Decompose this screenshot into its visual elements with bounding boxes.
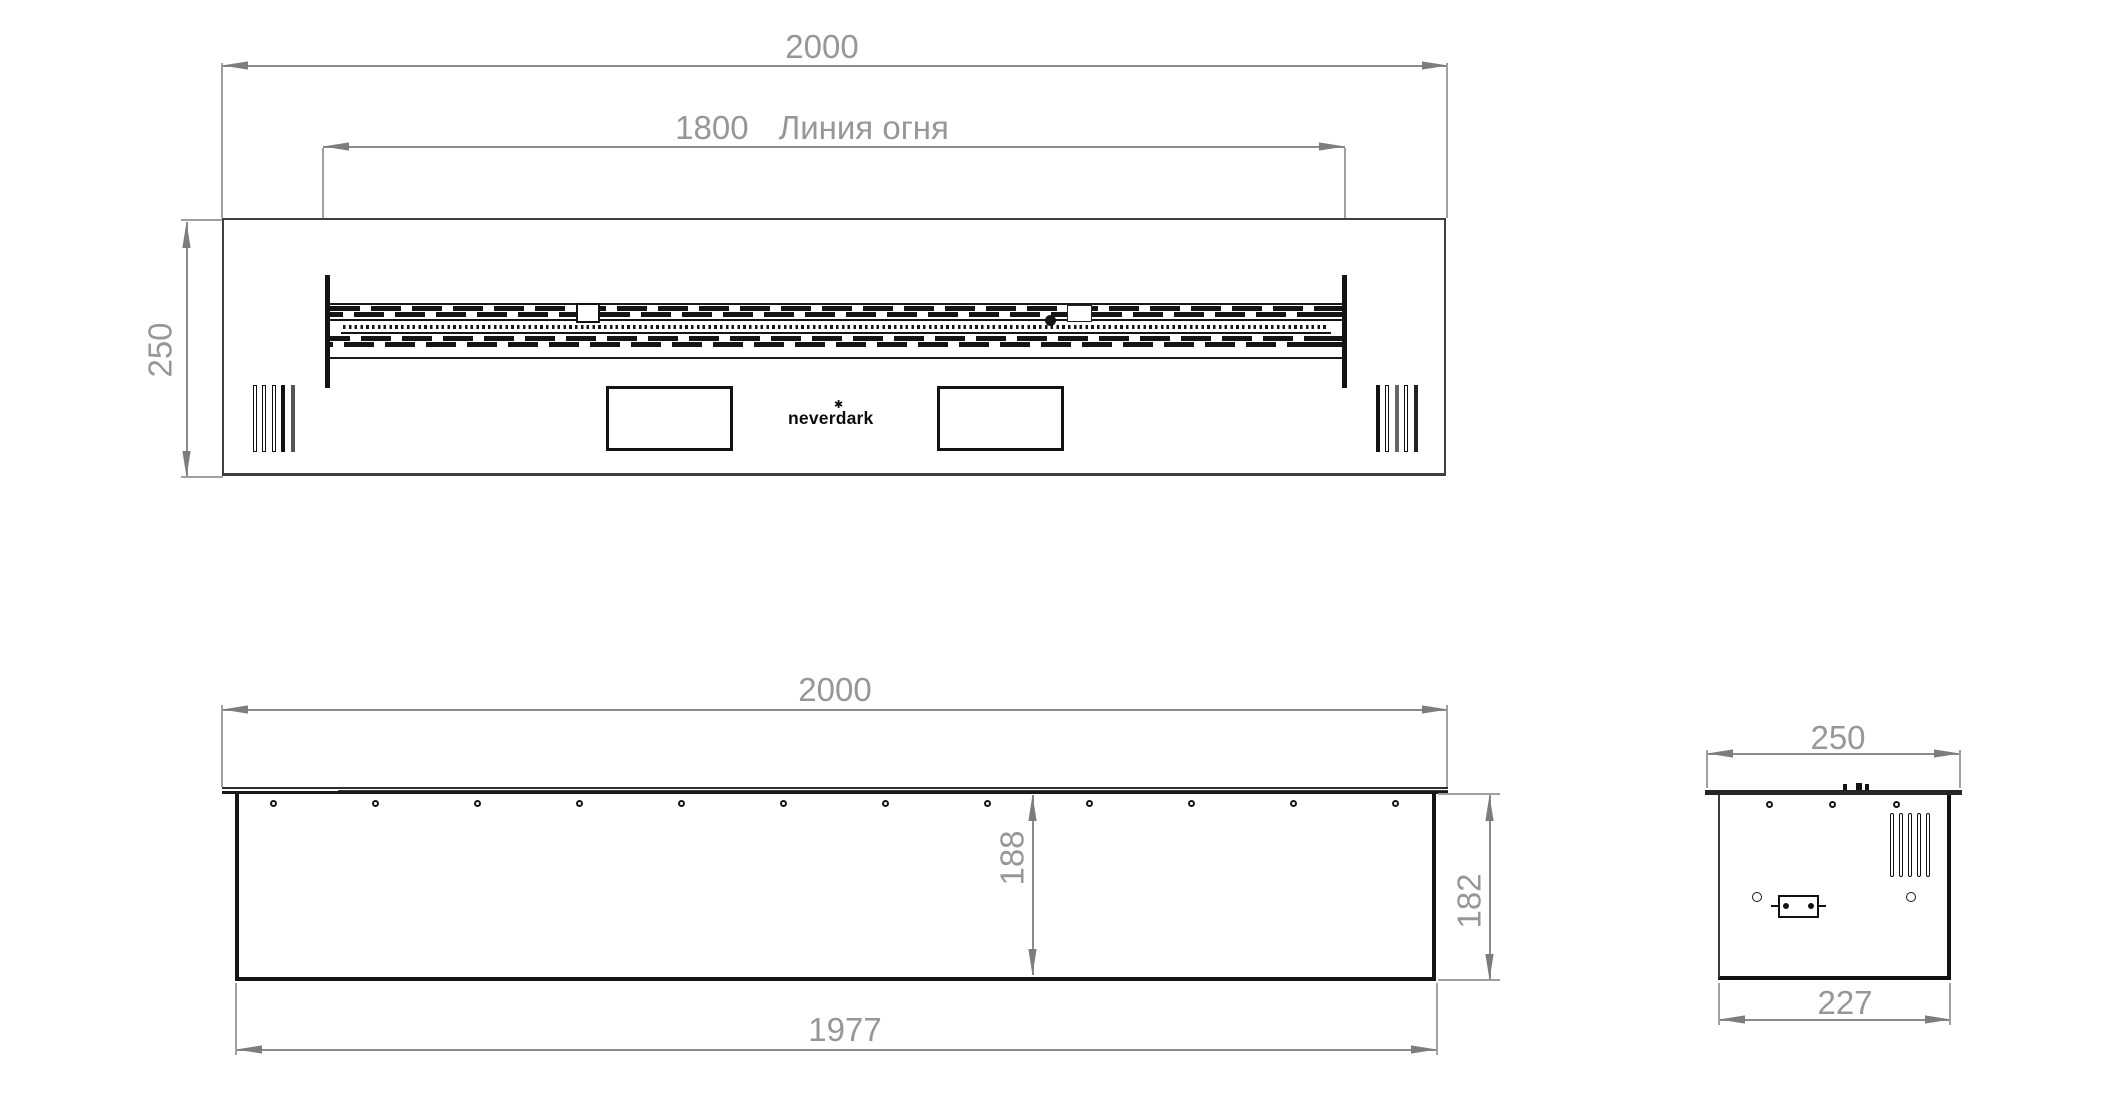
vent-grille-right [1376, 385, 1419, 452]
extension-line [221, 63, 223, 218]
vent-slot [1926, 813, 1930, 877]
vent-grille-left [253, 385, 296, 452]
arrow-up-icon [182, 222, 191, 248]
mounting-hole [1829, 801, 1836, 808]
dim-label: 2000 [775, 671, 895, 709]
hatch-row [330, 312, 1342, 317]
extension-line [221, 705, 223, 787]
mounting-hole [1188, 800, 1195, 807]
mounting-hole [576, 800, 583, 807]
arrow-right-icon [1422, 61, 1448, 70]
arrow-left-icon [236, 1045, 262, 1054]
fixing-hole [1906, 892, 1916, 902]
dim-label: 1977 [785, 1011, 905, 1049]
mounting-hole [1086, 800, 1093, 807]
mounting-hole [270, 800, 277, 807]
tray-end-notch [1331, 321, 1342, 334]
mounting-hole [984, 800, 991, 807]
arrow-left-icon [1707, 749, 1733, 758]
tray-rail [330, 332, 1342, 334]
arrow-down-icon [1028, 949, 1037, 975]
dim-label: 250 [1778, 719, 1898, 757]
fire-line-dots [343, 325, 1329, 329]
mounting-hole [780, 800, 787, 807]
mounting-hole [474, 800, 481, 807]
technical-drawing-sheet: 2000 1800 Линия огня 250 [0, 0, 2112, 1114]
extension-line [1438, 979, 1500, 981]
extension-line [1446, 705, 1448, 787]
hatch-row [330, 306, 1342, 311]
burner-tray [330, 303, 1342, 359]
arrow-up-icon [1485, 795, 1494, 821]
dim-label: 2000 [762, 28, 882, 66]
fire-line-label: Линия огня [779, 109, 949, 147]
extension-line [1718, 983, 1720, 1025]
sensor-box [1067, 305, 1092, 322]
vent-slot [1890, 813, 1894, 877]
dim-label: 182 [1435, 866, 1505, 936]
dim-line [222, 709, 1448, 711]
arrow-right-icon [1411, 1045, 1437, 1054]
arrow-right-icon [1422, 705, 1448, 714]
extension-line [1959, 750, 1961, 788]
vent-slot [1376, 385, 1380, 452]
dim-label: 250 [121, 315, 201, 385]
mounting-hole [1766, 801, 1773, 808]
mounting-hole [1392, 800, 1399, 807]
fixing-hole [1752, 892, 1762, 902]
vent-slot [281, 385, 285, 452]
arrow-up-icon [1028, 795, 1037, 821]
tray-rail [330, 319, 1342, 321]
dim-label: 227 [1785, 984, 1905, 1022]
vent-slot [1395, 385, 1399, 452]
vent-grille-side [1890, 813, 1932, 877]
body-wall-left [235, 794, 239, 978]
flange-screw-mark [1843, 784, 1847, 790]
arrow-left-icon [323, 142, 349, 151]
vent-slot [253, 385, 257, 452]
connector-pin [1783, 903, 1789, 909]
vent-slot [1385, 385, 1389, 452]
dim-line [236, 1049, 1437, 1051]
mounting-hole [372, 800, 379, 807]
arrow-down-icon [1485, 954, 1494, 980]
connector-pin [1808, 903, 1814, 909]
vent-slot [1908, 813, 1912, 877]
logo: ✱ neverdark [788, 408, 888, 434]
arrow-right-icon [1319, 142, 1345, 151]
arrow-right-icon [1934, 749, 1960, 758]
tray-end-notch [330, 321, 341, 334]
mounting-flange [222, 787, 1448, 794]
vent-slot [1917, 813, 1921, 877]
flange-screw-mark [1865, 784, 1869, 790]
vent-slot [1899, 813, 1903, 877]
mounting-hole [678, 800, 685, 807]
service-cutout-right [937, 386, 1064, 451]
arrow-left-icon [1719, 1015, 1745, 1024]
body-bottom [235, 977, 1436, 981]
vent-slot [1404, 385, 1408, 452]
arrow-right-icon [1925, 1015, 1951, 1024]
extension-line [235, 983, 237, 1055]
mounting-hole [1290, 800, 1297, 807]
arrow-down-icon [182, 451, 191, 477]
slider-knob [576, 303, 600, 323]
logo-text: neverdark [788, 408, 873, 428]
extension-line [181, 476, 223, 478]
vent-slot [262, 385, 266, 452]
flange-screw-mark [1856, 783, 1862, 790]
arrow-left-icon [222, 61, 248, 70]
vent-slot [1414, 385, 1418, 452]
extension-line [1706, 750, 1708, 788]
hatch-row [330, 336, 1342, 341]
mounting-hole [882, 800, 889, 807]
flange-lip-line [338, 790, 1448, 792]
burner-bracket-right [1342, 275, 1347, 388]
connector-stub [1771, 905, 1780, 907]
dim-label: 188 [978, 823, 1048, 893]
igniter-dot [1045, 315, 1056, 326]
dim-label-group: 1800 Линия огня [562, 109, 1062, 147]
service-cutout-left [606, 386, 733, 451]
hatch-row [330, 342, 1342, 347]
sparkle-icon: ✱ [834, 398, 843, 411]
mounting-hole [1893, 801, 1900, 808]
fire-line-value: 1800 [675, 109, 748, 147]
extension-line [181, 219, 223, 221]
extension-line [1436, 983, 1438, 1055]
arrow-left-icon [222, 705, 248, 714]
vent-slot [272, 385, 276, 452]
vent-slot [291, 385, 295, 452]
extension-line [1438, 793, 1500, 795]
extension-line [1446, 63, 1448, 218]
connector [1778, 895, 1819, 918]
extension-line [1949, 983, 1951, 1025]
connector-stub [1817, 905, 1826, 907]
